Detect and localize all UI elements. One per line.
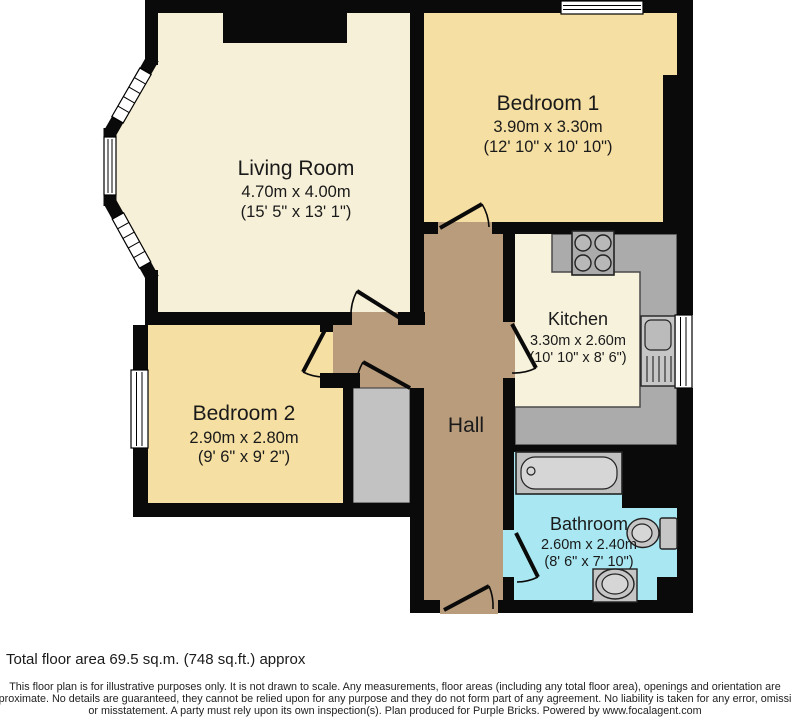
bedroom-1-window [561,1,643,14]
disclaimer-line-3: or misstatement. A party must rely upon … [88,705,701,717]
cupboard-area [353,388,410,503]
bathroom-imperial: (8' 6" x 7' 10") [544,554,633,570]
sink-icon [641,316,675,386]
disclaimer-line-2: approximate. No details are guaranteed, … [0,693,791,705]
bedroom-1-imperial: (12' 10" x 10' 10") [483,138,612,156]
living-room-label: Living Room [238,157,355,180]
floor-plan-svg: Living Room 4.70m x 4.00m (15' 5" x 13' … [0,0,791,720]
kitchen-label: Kitchen [548,309,608,329]
bedroom-1-label: Bedroom 1 [497,92,600,115]
floor-plan-page: Living Room 4.70m x 4.00m (15' 5" x 13' … [0,0,791,720]
total-floor-area: Total floor area 69.5 sq.m. (748 sq.ft.)… [6,651,306,668]
bedroom-2-window [131,370,148,448]
kitchen-metric: 3.30m x 2.60m [530,333,626,349]
kitchen-window [675,315,692,388]
bedroom-2-imperial: (9' 6" x 9' 2") [198,448,290,466]
bedroom-1-metric: 3.90m x 3.30m [493,118,602,136]
bathroom-label: Bathroom [550,514,628,534]
living-room-imperial: (15' 5" x 13' 1") [241,203,352,221]
living-room-metric: 4.70m x 4.00m [241,183,350,201]
bathroom-metric: 2.60m x 2.40m [541,537,637,553]
bath-icon [516,452,622,494]
bedroom-2-label: Bedroom 2 [193,402,296,425]
hob-icon [572,231,614,275]
bedroom-2-metric: 2.90m x 2.80m [189,429,298,447]
kitchen-imperial: (10' 10" x 8' 6") [529,350,626,366]
bay-window-centre [104,137,116,195]
basin-icon [593,569,637,602]
hall-label: Hall [448,414,484,437]
disclaimer-line-1: This floor plan is for illustrative purp… [9,681,781,693]
